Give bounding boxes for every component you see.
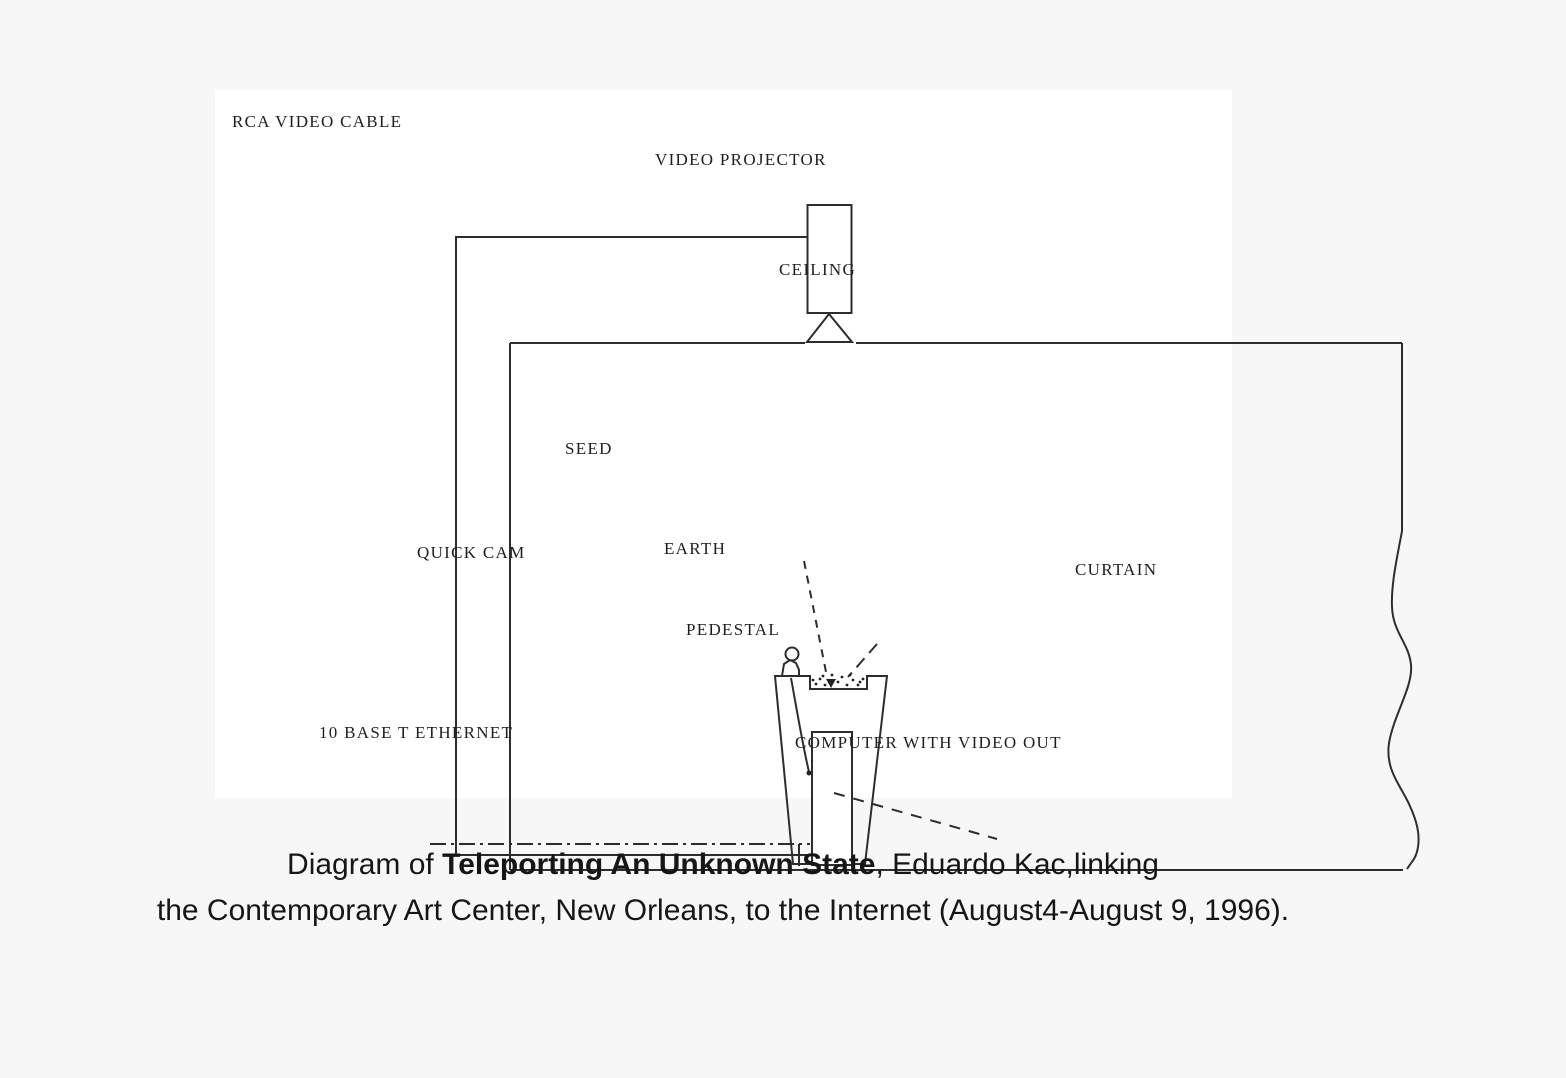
caption-prefix: Diagram of [287, 848, 442, 881]
quickcam-base [782, 660, 799, 676]
label-quick-cam: QUICK CAM [417, 543, 526, 563]
quickcam-ball [786, 648, 799, 661]
caption-line-2: the Contemporary Art Center, New Orleans… [0, 888, 1446, 934]
video-projector-box [808, 205, 852, 313]
curtain-wavy-line [1388, 531, 1418, 869]
seed-leader-line [804, 561, 827, 677]
label-computer-video-out: COMPUTER WITH VIDEO OUT [795, 733, 1062, 753]
seed-shape [826, 679, 836, 688]
caption-line1-suffix: , Eduardo Kac,linking [875, 848, 1159, 881]
label-video-projector: VIDEO PROJECTOR [655, 150, 827, 170]
computer-leader-line [834, 793, 997, 839]
earth-dots [812, 674, 865, 687]
quickcam-cable-line [791, 678, 809, 772]
page: { "page": { "background_color": "#f7f7f8… [0, 0, 1566, 988]
label-earth: EARTH [664, 539, 726, 559]
label-ceiling: CEILING [779, 260, 856, 280]
caption-artwork-title: Teleporting An Unknown State [442, 848, 875, 881]
quickcam-cable-end-dot [807, 771, 812, 776]
label-10baset-ethernet: 10 BASE T ETHERNET [319, 723, 513, 743]
label-curtain: CURTAIN [1075, 560, 1157, 580]
label-rca-video-cable: RCA VIDEO CABLE [232, 112, 402, 132]
caption: Diagram of Teleporting An Unknown State,… [0, 842, 1446, 934]
caption-line-1: Diagram of Teleporting An Unknown State,… [0, 842, 1446, 888]
diagram-panel [215, 90, 1232, 798]
earth-leader-line [848, 644, 877, 677]
label-pedestal: PEDESTAL [686, 620, 780, 640]
label-seed: SEED [565, 439, 613, 459]
projector-lens-cone [807, 314, 852, 342]
